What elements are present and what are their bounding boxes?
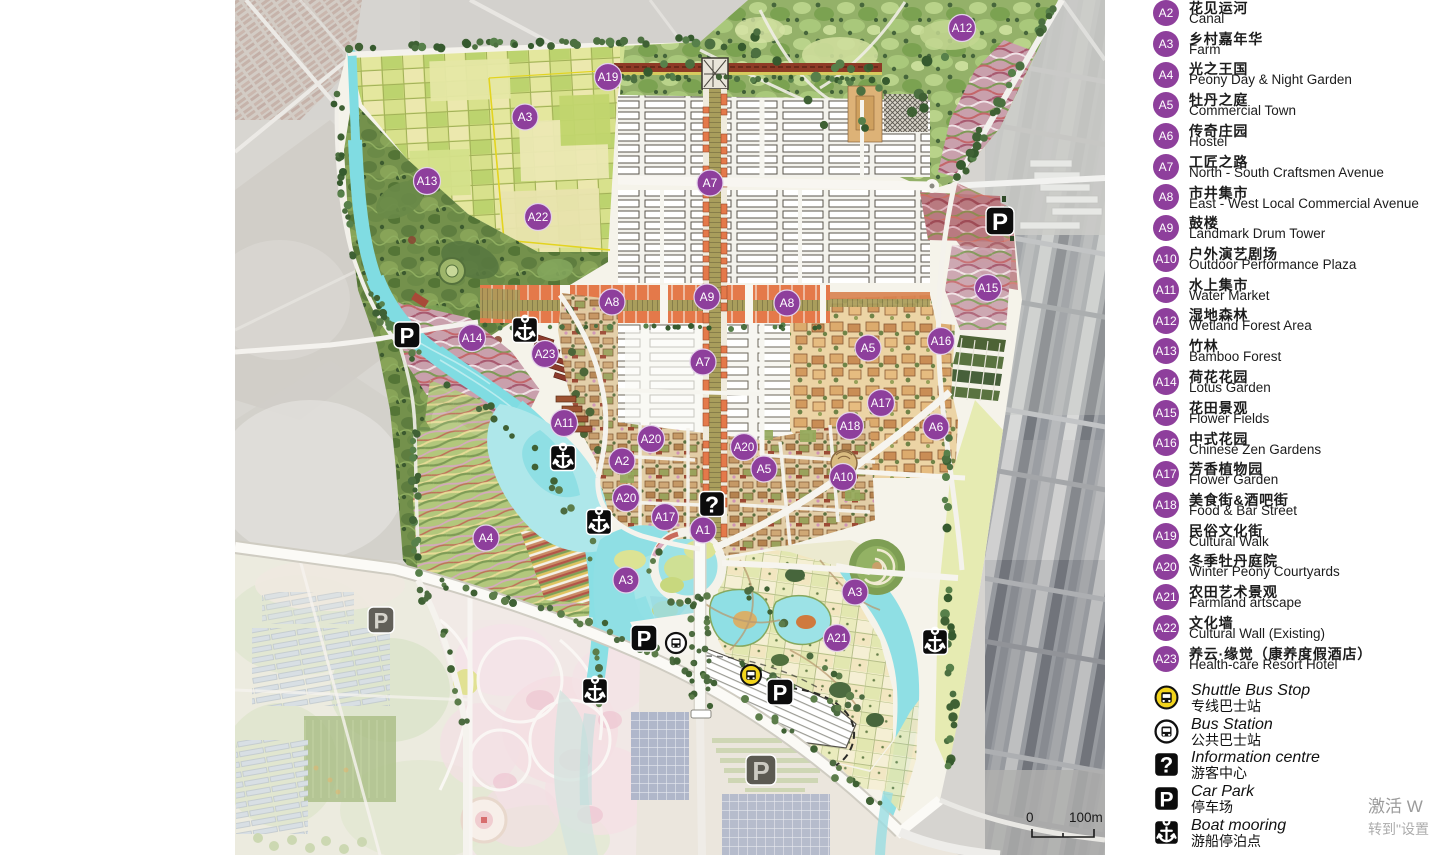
svg-text:A5: A5 <box>861 341 876 355</box>
svg-text:A7: A7 <box>703 176 718 190</box>
svg-text:A7: A7 <box>696 355 711 369</box>
svg-text:A20: A20 <box>734 442 754 454</box>
svg-text:100m: 100m <box>1069 810 1103 825</box>
svg-text:P: P <box>1159 788 1173 811</box>
svg-text:P: P <box>773 681 788 706</box>
svg-text:A19: A19 <box>598 72 618 84</box>
svg-text:A8: A8 <box>605 295 620 309</box>
svg-text:A22: A22 <box>528 212 548 224</box>
svg-text:A20: A20 <box>641 434 661 446</box>
svg-text:A9: A9 <box>700 290 715 304</box>
svg-text:A10: A10 <box>833 472 853 484</box>
svg-text:A12: A12 <box>952 23 972 35</box>
svg-text:A15: A15 <box>978 283 998 295</box>
svg-text:A20: A20 <box>616 493 636 505</box>
svg-text:A11: A11 <box>554 418 574 430</box>
svg-text:P: P <box>374 609 389 634</box>
svg-text:A4: A4 <box>479 531 494 545</box>
svg-text:P: P <box>992 209 1008 236</box>
svg-text:A8: A8 <box>780 296 795 310</box>
svg-text:A16: A16 <box>931 336 951 348</box>
svg-text:A3: A3 <box>619 573 634 587</box>
svg-text:A2: A2 <box>615 454 630 468</box>
svg-text:A14: A14 <box>462 333 483 345</box>
svg-text:A3: A3 <box>518 110 533 124</box>
svg-text:A6: A6 <box>929 420 944 434</box>
svg-text:A21: A21 <box>827 633 847 645</box>
svg-text:A17: A17 <box>655 512 675 524</box>
svg-text:?: ? <box>705 492 719 518</box>
svg-text:0: 0 <box>1026 810 1034 825</box>
svg-text:P: P <box>637 627 652 652</box>
svg-text:A23: A23 <box>535 349 555 361</box>
svg-text:A5: A5 <box>757 462 772 476</box>
svg-text:?: ? <box>1160 753 1173 777</box>
svg-text:A3: A3 <box>848 585 863 599</box>
svg-text:A17: A17 <box>871 398 891 410</box>
svg-text:P: P <box>400 324 415 349</box>
svg-text:A13: A13 <box>417 176 437 188</box>
svg-text:A18: A18 <box>840 421 860 433</box>
svg-text:A1: A1 <box>696 523 711 537</box>
svg-text:P: P <box>752 756 769 786</box>
